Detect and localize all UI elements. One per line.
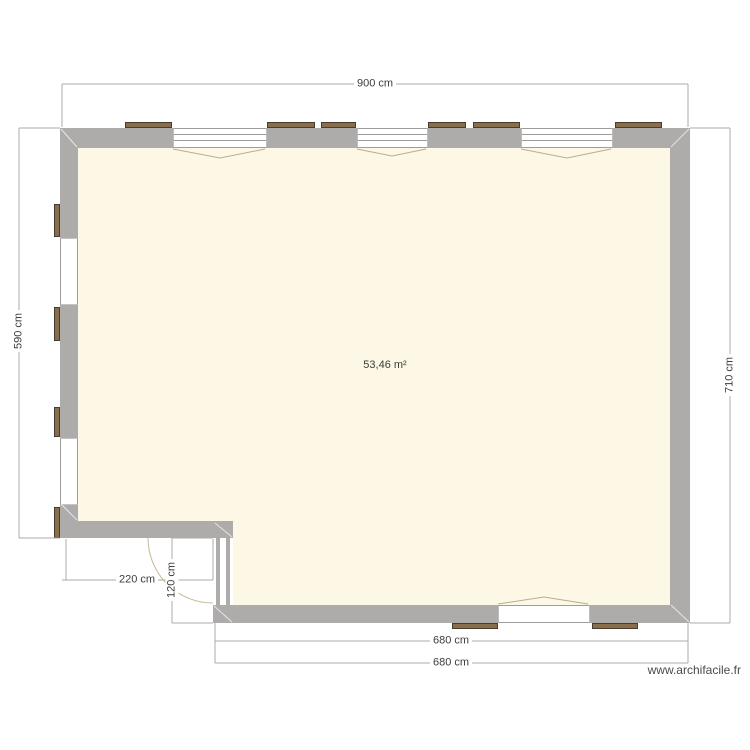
door-swing-arc-icon xyxy=(148,538,213,603)
watermark-link[interactable]: www.archifacile.fr xyxy=(648,663,741,677)
dimension-label-top: 900 cm xyxy=(354,78,396,91)
floorplan-canvas: 900 cm 590 cm 710 cm 220 cm 120 cm 680 c… xyxy=(0,0,750,750)
dimension-label-left: 590 cm xyxy=(13,310,26,352)
dimension-label-bottom-1: 680 cm xyxy=(430,635,472,648)
dimension-label-right: 710 cm xyxy=(724,354,737,396)
room-area-label: 53,46 m² xyxy=(363,359,406,371)
plan-annotations xyxy=(0,0,750,750)
wall-miter-lines xyxy=(61,129,689,622)
window-chevron-icon xyxy=(173,149,611,604)
dimension-label-notch-depth: 120 cm xyxy=(166,559,179,601)
dimension-label-notch-width: 220 cm xyxy=(116,574,158,587)
dimension-label-bottom-2: 680 cm xyxy=(430,657,472,670)
